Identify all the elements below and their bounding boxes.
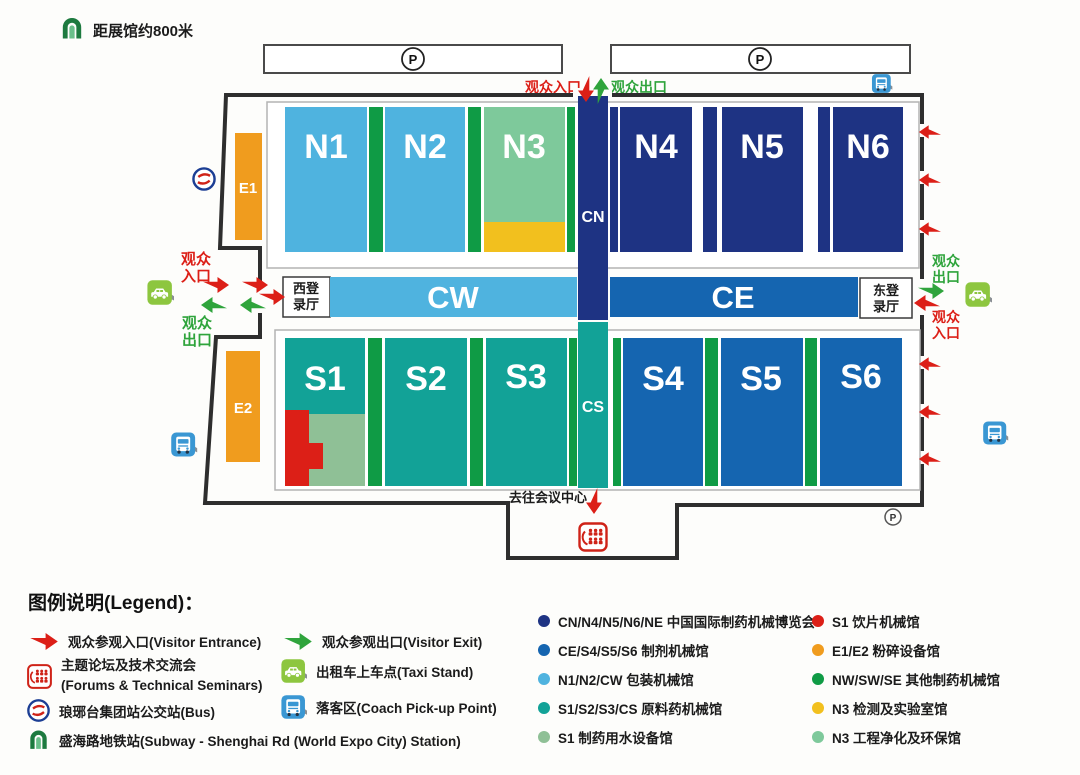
legend-forums-seminars: 主题论坛及技术交流会 (Forums & Technical Seminars)	[26, 656, 263, 697]
coach-icon-east	[983, 421, 1008, 444]
bus-logo-icon-west	[193, 168, 214, 189]
registration-west: 西登 录厅	[283, 277, 330, 317]
svg-text:东登: 东登	[873, 283, 900, 298]
registration-east: 东登 录厅	[860, 278, 912, 318]
svg-text:CW: CW	[427, 280, 479, 315]
legend-title: 图例说明(Legend)：	[28, 588, 203, 615]
svg-text:P: P	[890, 513, 897, 524]
legend-halls-packaging: N1/N2/CW 包装机械馆	[538, 669, 694, 689]
distance-note: 距展馆约800米	[93, 22, 194, 40]
metro-logo-icon	[63, 18, 81, 39]
svg-text:西登: 西登	[293, 281, 320, 296]
separator-sw	[368, 338, 382, 486]
bus-logo-icon	[26, 698, 51, 723]
top-exit-label: 观众出口	[611, 79, 667, 95]
legend-halls-other: NW/SW/SE 其他制药机械馆	[812, 669, 1000, 689]
hall-n1: N1	[285, 107, 367, 252]
coach-icon-west	[171, 433, 197, 457]
separator-nw	[567, 107, 575, 252]
orange-dot	[812, 644, 824, 656]
corridor-cn: CN	[578, 96, 608, 320]
svg-text:E2: E2	[234, 400, 252, 417]
hall-s4: S4	[623, 338, 703, 486]
legend-taxi-stand: 出租车上车点(Taxi Stand)	[280, 658, 473, 684]
hall-n2: N2	[385, 107, 465, 252]
legend-halls-cipm: CN/N4/N5/N6/NE 中国国际制药机械博览会	[538, 611, 815, 631]
legend-halls-water: S1 制药用水设备馆	[538, 727, 673, 747]
legend-halls-testing: N3 检测及实验室馆	[812, 698, 948, 718]
svg-text:N1: N1	[304, 128, 347, 166]
yellow-dot	[812, 702, 824, 714]
expo-floor-map: 距展馆约800米 P P 观众入口 观众出口 E1 E2 N1	[0, 0, 1080, 775]
separator-sw	[470, 338, 483, 486]
taxi-icon	[280, 658, 308, 684]
coach-icon	[280, 694, 308, 720]
legend-halls-preparation: CE/S4/S5/S6 制剂机械馆	[538, 640, 709, 660]
hall-s6: S6	[820, 338, 902, 486]
svg-text:N3: N3	[502, 128, 545, 166]
legend-halls-herbal: S1 饮片机械馆	[812, 611, 920, 631]
coach-icon-top	[872, 74, 892, 93]
corridor-ce: CE	[610, 277, 858, 317]
svg-text:出口: 出口	[932, 269, 960, 285]
legend-visitor-exit: 观众参观出口(Visitor Exit)	[282, 631, 482, 651]
svg-text:S5: S5	[740, 360, 782, 398]
taxi-icon-west	[147, 280, 174, 304]
parking-p-label: P	[756, 52, 765, 67]
hall-s1: S1	[285, 338, 365, 486]
separator-sw	[569, 338, 577, 486]
legend-visitor-entrance: 观众参观入口(Visitor Entrance)	[28, 631, 261, 651]
svg-text:CE: CE	[711, 280, 754, 315]
conference-arrow	[586, 488, 602, 514]
legend-coach-pickup: 落客区(Coach Pick-up Point)	[280, 694, 497, 720]
taxi-icon-east	[965, 282, 992, 306]
metro-logo-icon	[26, 727, 51, 752]
west-exit-arrow	[201, 297, 227, 313]
legend-halls-purification: N3 工程净化及环保馆	[812, 727, 961, 747]
svg-text:S4: S4	[642, 360, 684, 398]
east-entrance-label: 观众	[932, 309, 960, 325]
red-dot	[812, 615, 824, 627]
svg-text:N2: N2	[403, 128, 446, 166]
svg-text:录厅: 录厅	[873, 299, 899, 314]
seminar-icon	[26, 663, 53, 690]
legend-bus-station: 琅琊台集团站公交站(Bus)	[26, 698, 215, 723]
svg-text:S6: S6	[840, 358, 882, 396]
hall-s3: S3	[486, 338, 567, 486]
sage-dot	[538, 731, 550, 743]
exit-arrow-icon	[282, 633, 314, 650]
svg-text:CS: CS	[582, 399, 605, 416]
separator-nw	[369, 107, 383, 252]
corridor-cw: CW	[330, 277, 577, 317]
svg-text:N6: N6	[846, 128, 889, 166]
separator-ne	[818, 107, 830, 252]
hall-e1: E1	[235, 133, 262, 240]
svg-text:N5: N5	[740, 128, 783, 166]
separator-nw	[468, 107, 481, 252]
hall-n6: N6	[833, 107, 903, 252]
map-canvas: 距展馆约800米 P P 观众入口 观众出口 E1 E2 N1	[0, 0, 1080, 580]
west-entrance-label: 观众	[181, 250, 211, 268]
svg-text:S2: S2	[405, 360, 447, 398]
east-exit-label: 观众	[932, 253, 960, 269]
separator-ne	[610, 107, 618, 252]
hall-s2: S2	[385, 338, 467, 486]
svg-text:N4: N4	[634, 128, 678, 166]
svg-text:S1: S1	[304, 360, 346, 398]
svg-text:录厅: 录厅	[293, 297, 319, 312]
blue-dot	[538, 644, 550, 656]
svg-text:入口: 入口	[932, 325, 960, 341]
svg-text:S3: S3	[505, 358, 547, 396]
parking-marker-southeast: P	[885, 509, 901, 525]
legend-halls-crushing: E1/E2 粉碎设备馆	[812, 640, 940, 660]
teal-dot	[538, 702, 550, 714]
hall-e2: E2	[226, 351, 260, 462]
entrance-arrow-icon	[28, 633, 60, 650]
svg-text:E1: E1	[239, 180, 257, 197]
top-entrance-label: 观众入口	[525, 79, 581, 95]
legend-halls-api: S1/S2/S3/CS 原料药机械馆	[538, 698, 722, 718]
svg-text:出口: 出口	[182, 331, 212, 349]
parking-lot-west: P	[264, 45, 562, 73]
seminar-icon-map	[580, 524, 607, 551]
hall-n3-lab-zone	[484, 222, 565, 252]
hall-n5: N5	[722, 107, 803, 252]
legend-subway-station: 盛海路地铁站(Subway - Shenghai Rd (World Expo …	[26, 727, 461, 752]
separator-se	[705, 338, 718, 486]
separator-se	[805, 338, 817, 486]
corridor-cs: CS	[578, 322, 608, 488]
lightblue-dot	[538, 673, 550, 685]
parking-lot-east: P	[611, 45, 910, 73]
hall-n3: N3	[484, 107, 565, 252]
separator-ne	[703, 107, 717, 252]
west-exit-label: 观众	[182, 314, 212, 332]
hall-s5: S5	[721, 338, 803, 486]
parking-p-label: P	[409, 52, 418, 67]
separator-se	[613, 338, 621, 486]
conference-center-note: 去往会议中心	[509, 490, 587, 505]
darkgreen-dot	[812, 673, 824, 685]
svg-text:CN: CN	[581, 209, 604, 226]
navy-dot	[538, 615, 550, 627]
hall-n4: N4	[620, 107, 692, 252]
lightgreen-dot	[812, 731, 824, 743]
